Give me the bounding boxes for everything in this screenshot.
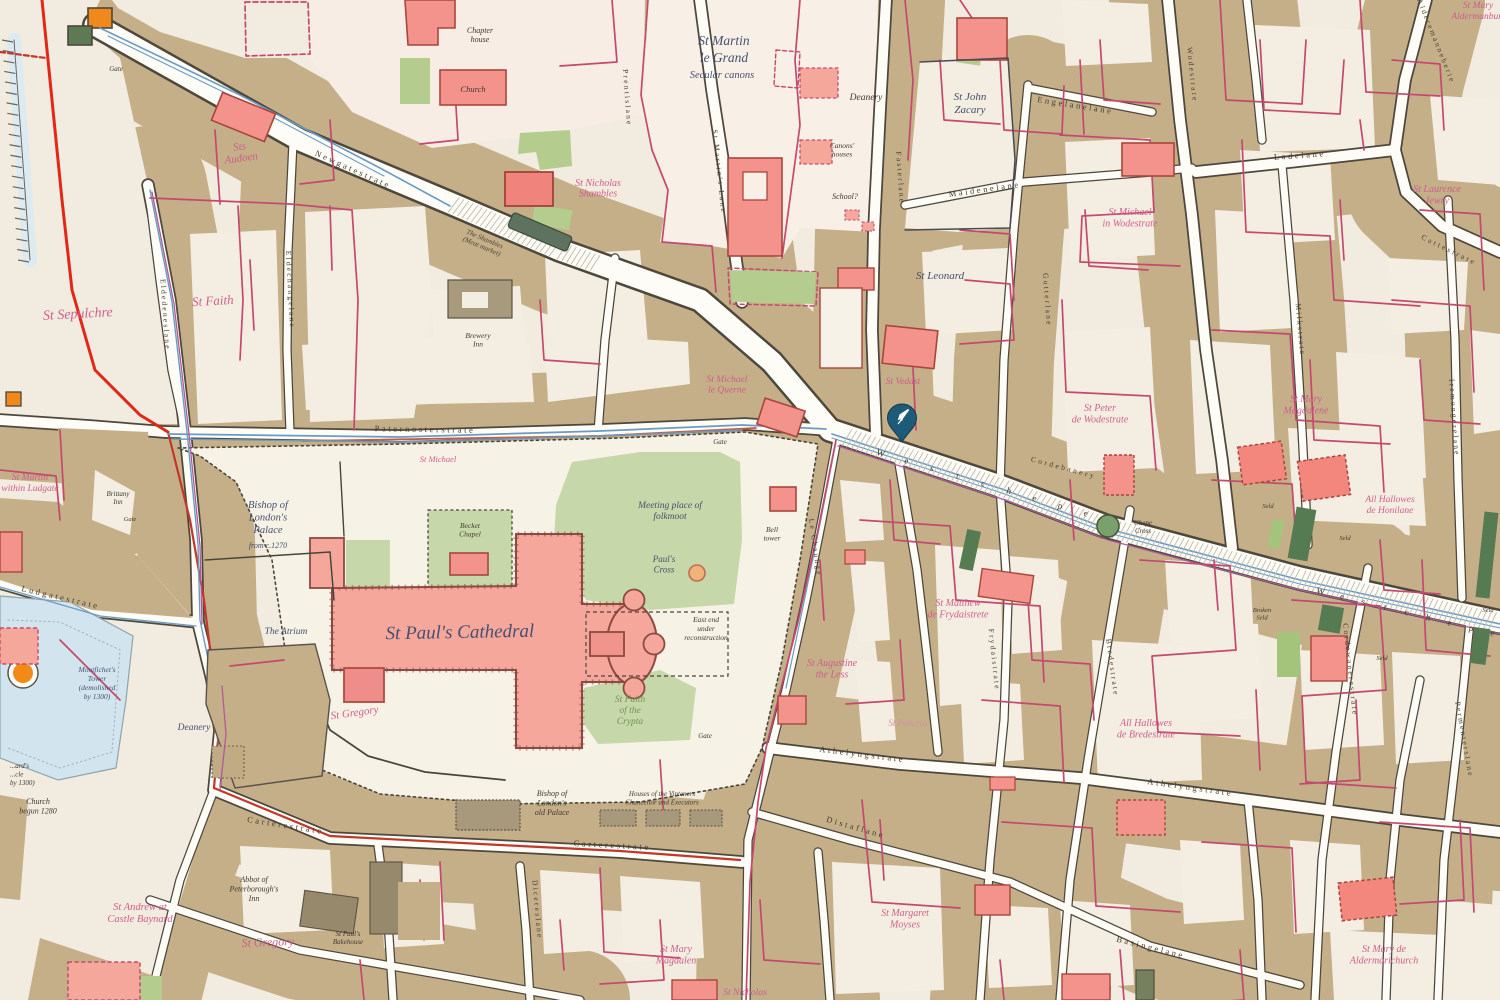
- svg-text:reconstruction: reconstruction: [684, 633, 728, 642]
- svg-text:St Mary: St Mary: [1463, 1, 1494, 11]
- svg-text:from c.1270: from c.1270: [249, 541, 287, 550]
- svg-text:All Hallowes: All Hallowes: [1119, 718, 1172, 729]
- svg-text:St Margaret: St Margaret: [881, 908, 929, 919]
- svg-text:house: house: [471, 35, 490, 44]
- svg-text:St Nicholas: St Nicholas: [723, 988, 767, 998]
- svg-text:Bishop of: Bishop of: [537, 789, 569, 798]
- svg-text:Chancellor and Executors: Chancellor and Executors: [625, 799, 699, 807]
- svg-text:by 1300): by 1300): [10, 779, 35, 787]
- svg-text:London's: London's: [536, 799, 566, 808]
- svg-text:Gate: Gate: [109, 65, 123, 73]
- svg-text:houses: houses: [832, 150, 852, 159]
- svg-text:Palace: Palace: [252, 525, 282, 536]
- svg-text:de Bredestrate: de Bredestrate: [1117, 730, 1176, 741]
- svg-text:Cross: Cross: [1135, 527, 1151, 535]
- svg-text:St Faith: St Faith: [615, 695, 646, 705]
- svg-text:of the: of the: [619, 705, 640, 716]
- svg-text:London's: London's: [248, 513, 287, 524]
- svg-text:old Palace: old Palace: [535, 808, 570, 817]
- svg-text:The Atrium: The Atrium: [265, 627, 308, 637]
- svg-text:de Honilane: de Honilane: [1367, 506, 1414, 516]
- svg-text:Deanery: Deanery: [849, 93, 883, 103]
- svg-text:in Wodestrate: in Wodestrate: [1103, 219, 1158, 230]
- svg-text:Gate: Gate: [698, 732, 712, 740]
- svg-text:the Less: the Less: [816, 670, 849, 681]
- svg-text:Peterborough's: Peterborough's: [229, 885, 279, 894]
- svg-text:Paul's: Paul's: [652, 554, 676, 564]
- svg-text:St Augustine: St Augustine: [807, 658, 858, 669]
- svg-text:Broken: Broken: [1253, 607, 1272, 614]
- svg-text:St Mary de: St Mary de: [1362, 944, 1406, 955]
- svg-text:St Leonard: St Leonard: [916, 270, 965, 282]
- svg-text:St Mary: St Mary: [660, 944, 693, 955]
- svg-text:tower: tower: [763, 534, 780, 543]
- svg-text:Bishop of: Bishop of: [248, 500, 290, 511]
- svg-text:St Faith: St Faith: [192, 292, 234, 309]
- svg-text:Chepe: Chepe: [1134, 519, 1152, 527]
- svg-text:folkmoot: folkmoot: [653, 511, 687, 522]
- svg-text:Church: Church: [26, 797, 50, 806]
- svg-text:St Michael: St Michael: [420, 454, 457, 464]
- svg-text:Montfichet's: Montfichet's: [77, 665, 115, 674]
- svg-text:(demolished: (demolished: [79, 683, 116, 692]
- svg-text:Magdalen: Magdalen: [655, 956, 697, 967]
- svg-text:Cross: Cross: [654, 565, 675, 575]
- svg-text:Seld: Seld: [1376, 655, 1388, 662]
- svg-text:St Martin: St Martin: [12, 473, 48, 483]
- svg-text:St Vedast: St Vedast: [886, 377, 921, 387]
- svg-text:Meeting place of: Meeting place of: [637, 500, 703, 511]
- svg-text:Brittany: Brittany: [107, 490, 131, 498]
- svg-text:Bakehouse: Bakehouse: [333, 938, 363, 946]
- svg-text:St John: St John: [954, 91, 987, 103]
- svg-text:St Michael: St Michael: [1108, 207, 1151, 218]
- svg-text:St Michael: St Michael: [707, 375, 748, 385]
- svg-text:le Grand: le Grand: [700, 50, 749, 65]
- svg-text:St Matthew: St Matthew: [935, 598, 981, 609]
- svg-text:Seld: Seld: [1482, 607, 1494, 614]
- svg-text:St Peter: St Peter: [1084, 403, 1116, 414]
- svg-text:Chapter: Chapter: [467, 26, 494, 35]
- svg-text:East end: East end: [692, 615, 719, 624]
- svg-text:St Gregory: St Gregory: [241, 934, 295, 950]
- svg-text:de Frydaistrete: de Frydaistrete: [927, 610, 989, 621]
- svg-text:...ard's: ...ard's: [10, 762, 29, 770]
- svg-text:Magdalene: Magdalene: [1283, 406, 1330, 417]
- svg-text:Shambles: Shambles: [579, 189, 617, 200]
- svg-text:Moyses: Moyses: [889, 920, 920, 931]
- svg-text:Inn: Inn: [472, 340, 483, 349]
- svg-text:Seld: Seld: [1262, 503, 1274, 510]
- svg-text:St Laurence: St Laurence: [1413, 184, 1461, 195]
- svg-text:Inn: Inn: [248, 894, 260, 903]
- svg-text:Secular canons: Secular canons: [690, 70, 754, 81]
- svg-text:Inn: Inn: [112, 498, 123, 506]
- svg-text:Aldermarichurch: Aldermarichurch: [1349, 956, 1419, 967]
- svg-text:Paternosterstrate: Paternosterstrate: [375, 423, 476, 435]
- svg-text:St Pancras: St Pancras: [888, 718, 928, 728]
- svg-text:Seld: Seld: [1256, 615, 1268, 622]
- svg-text:Deanery: Deanery: [177, 723, 211, 733]
- svg-text:Houses of the Vinteners: Houses of the Vinteners: [628, 790, 695, 798]
- svg-text:Chapel: Chapel: [459, 530, 481, 539]
- svg-text:Gate: Gate: [124, 516, 137, 523]
- svg-text:le Querne: le Querne: [708, 386, 746, 396]
- svg-text:St Paul's Cathedral: St Paul's Cathedral: [385, 621, 534, 645]
- svg-text:begun 1280: begun 1280: [19, 807, 57, 816]
- svg-text:Castle Baynard: Castle Baynard: [107, 914, 173, 925]
- svg-text:Church: Church: [460, 84, 485, 94]
- svg-text:Aldermanburi: Aldermanburi: [1450, 12, 1500, 22]
- svg-text:St Paul's: St Paul's: [336, 930, 361, 938]
- svg-text:Tower: Tower: [88, 674, 107, 683]
- svg-text:Crypta: Crypta: [617, 717, 644, 727]
- svg-text:within Ludgate: within Ludgate: [1, 484, 58, 494]
- svg-text:by 1300): by 1300): [84, 692, 111, 701]
- svg-text:St Mary: St Mary: [1290, 394, 1323, 405]
- svg-text:Seld: Seld: [1339, 535, 1351, 542]
- svg-text:Abbot of: Abbot of: [239, 875, 269, 884]
- svg-text:Jewry: Jewry: [1425, 196, 1449, 207]
- svg-text:...cle: ...cle: [10, 771, 23, 779]
- svg-text:School?: School?: [832, 192, 858, 201]
- svg-text:de Wodestrate: de Wodestrate: [1072, 415, 1129, 426]
- svg-text:All Hallowes: All Hallowes: [1364, 495, 1415, 505]
- svg-text:St Nicholas: St Nicholas: [575, 178, 621, 189]
- svg-text:Zacary: Zacary: [954, 104, 985, 116]
- svg-text:St Martin: St Martin: [698, 33, 750, 48]
- svg-text:Gate: Gate: [713, 438, 727, 446]
- svg-text:under: under: [697, 624, 715, 633]
- svg-text:St Andrew at: St Andrew at: [113, 902, 168, 913]
